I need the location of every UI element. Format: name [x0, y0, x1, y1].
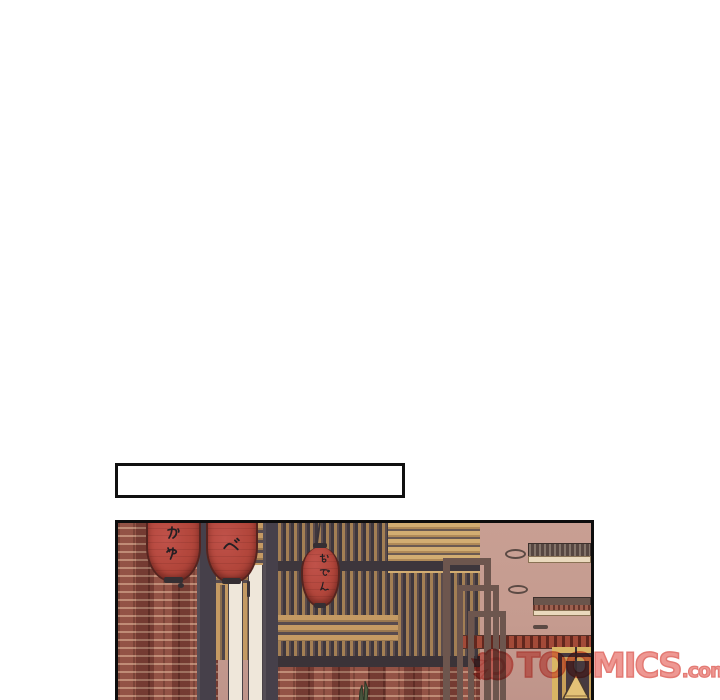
wall-shelf [533, 597, 591, 616]
kana-de-glyph [319, 567, 330, 578]
ceiling-light [508, 585, 528, 594]
shelf-top [528, 543, 591, 557]
lantern-tassel [247, 581, 250, 597]
kana-o-glyph [319, 553, 330, 564]
ceiling-light [505, 549, 526, 559]
kana-ka-glyph [166, 525, 182, 541]
lantern-1-label: かや [148, 521, 149, 522]
lantern-2-label: べ [208, 521, 209, 522]
shelf-edge [533, 610, 591, 616]
light-gap [248, 565, 263, 700]
kana-n-glyph [319, 581, 330, 592]
plant [354, 675, 374, 700]
paper-lantern-3: おでん [301, 547, 340, 607]
toomics-logo-icon [471, 647, 517, 685]
lantern-rim [222, 578, 241, 584]
watermark-brand: TOOMICS [517, 649, 681, 683]
lantern-cap [313, 543, 327, 548]
watermark-suffix: .com [682, 662, 720, 681]
lantern-rim [314, 603, 326, 608]
ceiling-light-edge [533, 625, 548, 629]
toomics-watermark: TOOMICS .com [471, 644, 720, 688]
wood-lattice [278, 615, 398, 641]
wall-shelf [528, 543, 591, 566]
light-gap [228, 565, 243, 700]
webtoon-page: かや べ [0, 0, 720, 700]
door-post [263, 523, 278, 700]
caption-box [115, 463, 405, 498]
kana-ya-glyph [164, 545, 180, 561]
lantern-knob [178, 583, 184, 588]
shelf-edge [528, 556, 591, 563]
kana-be-glyph [222, 537, 240, 555]
